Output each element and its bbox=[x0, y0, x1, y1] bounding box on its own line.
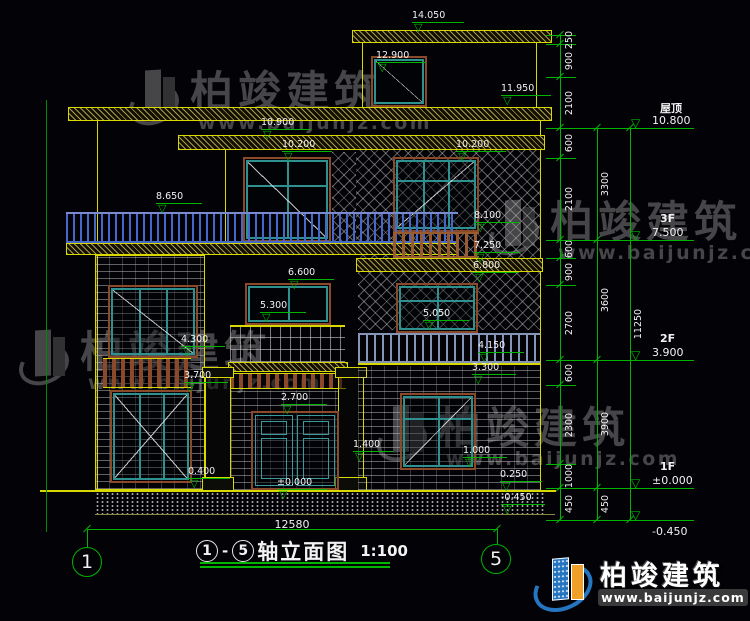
title-axis-dash: - bbox=[222, 542, 228, 560]
title-underline bbox=[200, 566, 390, 568]
title-axis-bubble-start: 1 bbox=[196, 540, 218, 562]
company-logo: 柏竣建筑 www.baijunjz.com bbox=[530, 554, 748, 618]
logo-building-icon bbox=[571, 564, 584, 600]
title-underline bbox=[200, 562, 390, 564]
title-bar: 1 - 5 轴立面图 1:100 bbox=[0, 0, 750, 621]
logo-building-icon bbox=[552, 557, 569, 600]
title-scale: 1:100 bbox=[360, 542, 408, 560]
logo-company-name: 柏竣建筑 bbox=[600, 554, 724, 593]
logo-url: www.baijunjz.com bbox=[601, 590, 745, 605]
cad-elevation-screenshot: 柏竣建筑www.baijunjz.com柏竣建筑www.baijunjz.com… bbox=[0, 0, 750, 621]
logo-url-banner: www.baijunjz.com bbox=[598, 589, 748, 606]
title-axis-bubble-end: 5 bbox=[232, 540, 254, 562]
